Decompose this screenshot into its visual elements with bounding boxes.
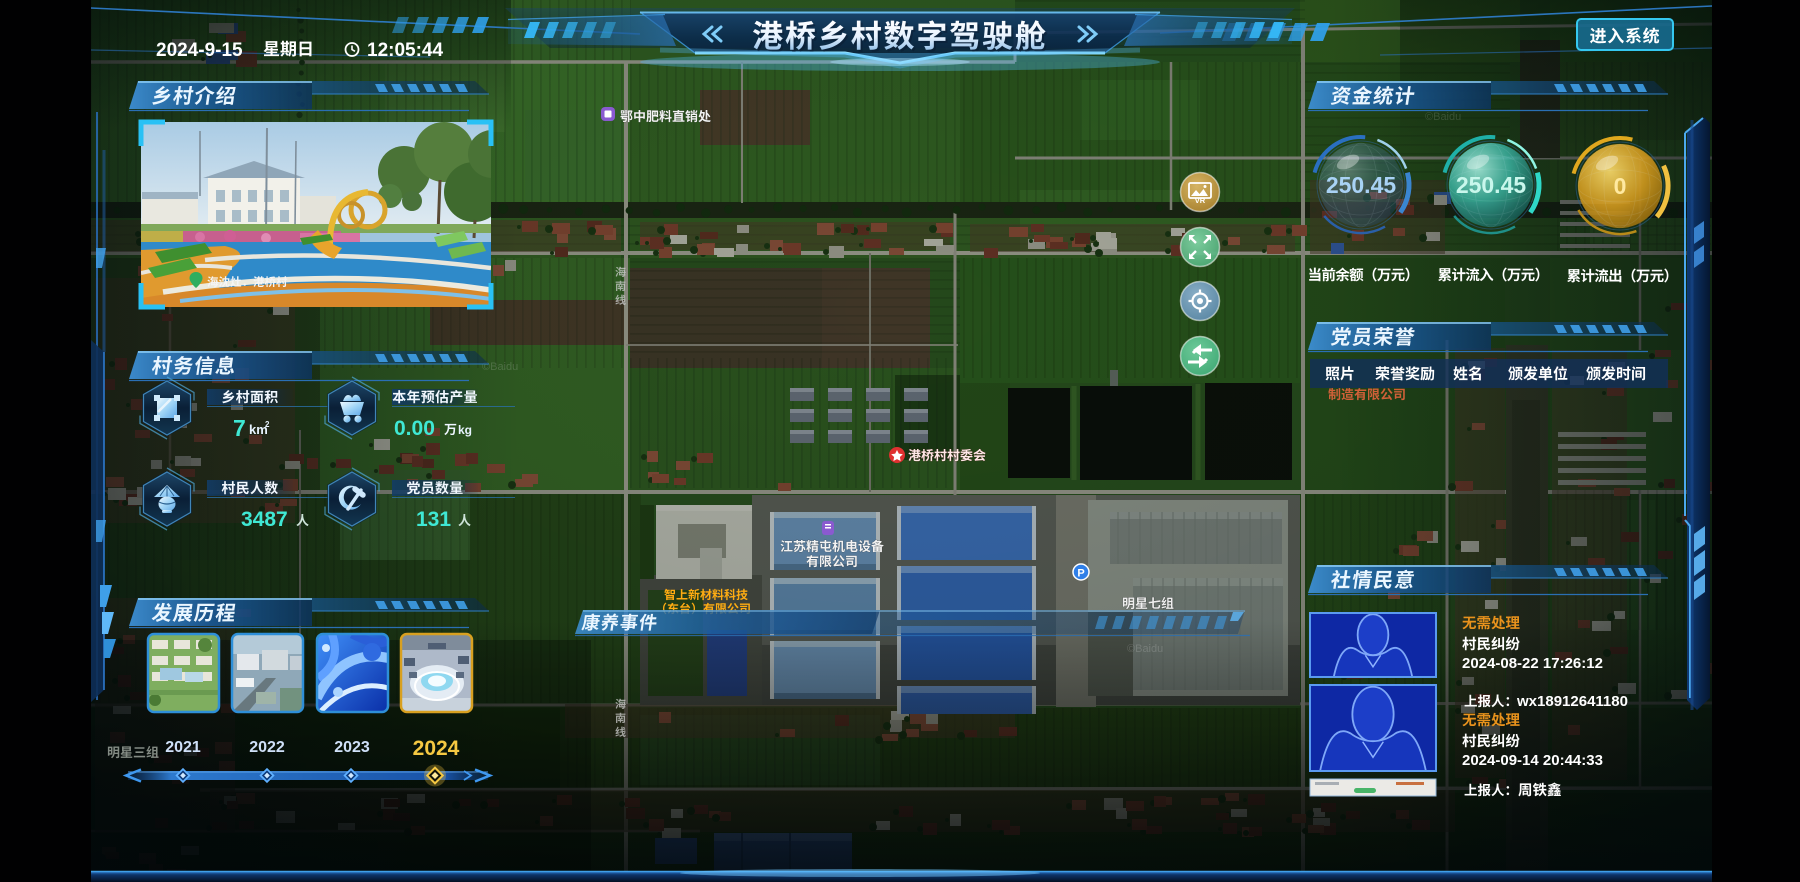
svg-text:VR: VR [1195,196,1206,205]
svg-text:2: 2 [265,420,270,429]
svg-text:7: 7 [233,415,246,441]
svg-text:2024-08-22 17:26:12: 2024-08-22 17:26:12 [1462,655,1603,672]
svg-text:kg: kg [458,423,472,437]
svg-text:250.45: 250.45 [1456,172,1527,198]
svg-text:2021: 2021 [165,739,201,756]
svg-text:wx18912641180: wx18912641180 [1516,693,1628,710]
svg-text:250.45: 250.45 [1326,172,1397,198]
svg-text:3487: 3487 [241,508,288,531]
svg-text:131: 131 [416,508,451,531]
svg-text:2024-09-14 20:44:33: 2024-09-14 20:44:33 [1462,752,1603,769]
svg-text:0: 0 [1614,173,1627,199]
svg-text:©Baidu: ©Baidu [1425,111,1461,123]
svg-text:2023: 2023 [334,739,370,756]
svg-text:12:05:44: 12:05:44 [367,40,443,61]
svg-text:2022: 2022 [249,739,285,756]
svg-text:2024: 2024 [413,737,460,760]
svg-text:©Baidu: ©Baidu [1127,643,1163,655]
svg-text:2024-9-15: 2024-9-15 [156,40,243,61]
svg-text:P: P [1077,568,1084,580]
svg-text:0.00: 0.00 [394,417,435,440]
